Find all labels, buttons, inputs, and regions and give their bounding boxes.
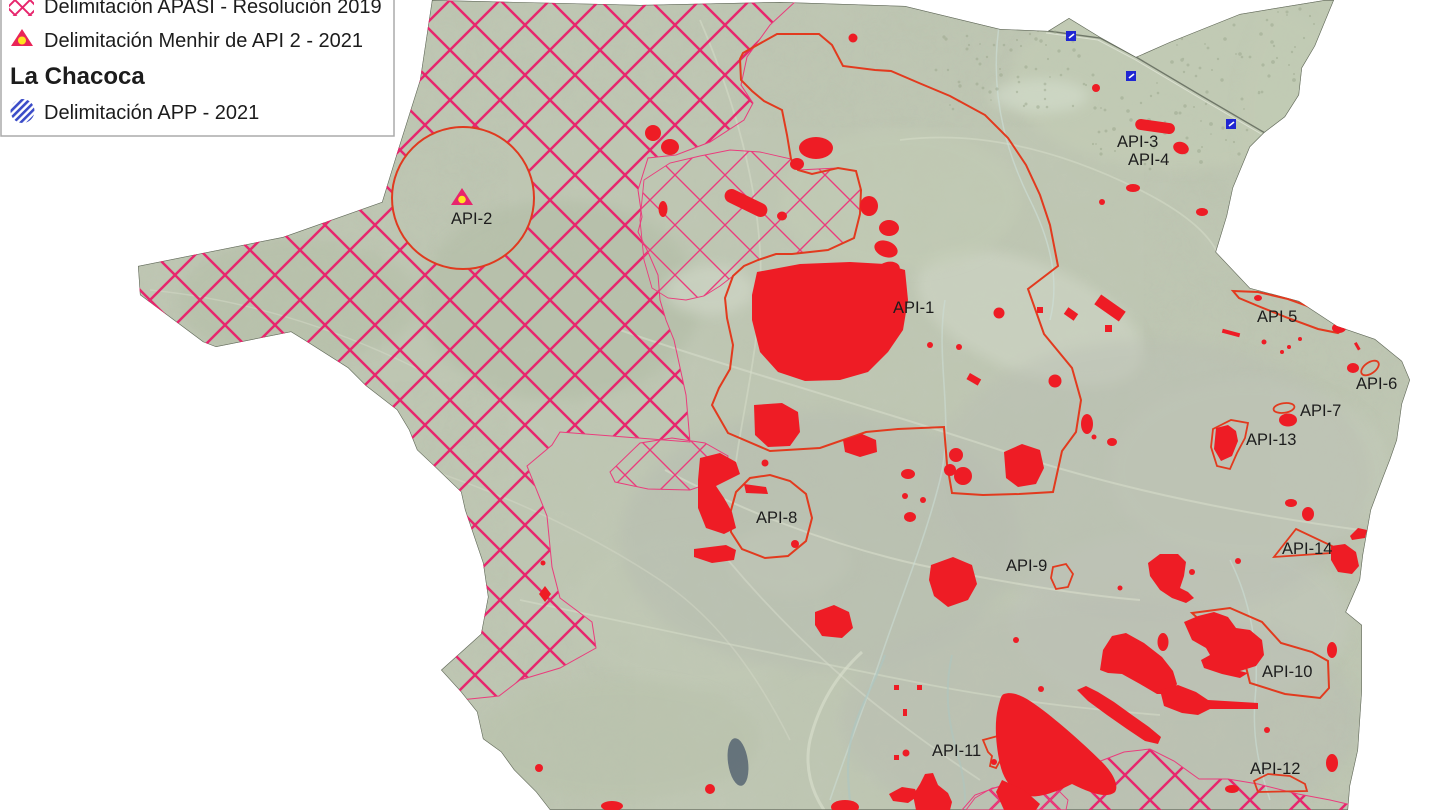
svg-text:API-14: API-14 bbox=[1282, 540, 1332, 558]
svg-text:API-12: API-12 bbox=[1250, 760, 1300, 778]
svg-text:Delimitación APP - 2021: Delimitación APP - 2021 bbox=[44, 102, 259, 124]
svg-text:API-13: API-13 bbox=[1246, 431, 1296, 449]
svg-text:API-6: API-6 bbox=[1356, 375, 1397, 393]
svg-text:La Chacoca: La Chacoca bbox=[10, 63, 145, 90]
svg-text:API-3: API-3 bbox=[1117, 133, 1158, 151]
svg-text:Delimitación APASI - Resolució: Delimitación APASI - Resolución 2019 bbox=[44, 0, 382, 18]
svg-text:API-11: API-11 bbox=[932, 742, 981, 760]
svg-text:API-2: API-2 bbox=[451, 210, 492, 228]
svg-text:API-10: API-10 bbox=[1262, 663, 1312, 681]
svg-text:API-1: API-1 bbox=[893, 299, 934, 317]
svg-text:API-7: API-7 bbox=[1300, 402, 1341, 420]
svg-text:API 5: API 5 bbox=[1257, 308, 1297, 326]
svg-text:Delimitación Menhir de API 2 -: Delimitación Menhir de API 2 - 2021 bbox=[44, 30, 363, 52]
svg-text:API-9: API-9 bbox=[1006, 557, 1047, 575]
svg-text:API-8: API-8 bbox=[756, 509, 797, 527]
svg-text:API-4: API-4 bbox=[1128, 151, 1169, 169]
